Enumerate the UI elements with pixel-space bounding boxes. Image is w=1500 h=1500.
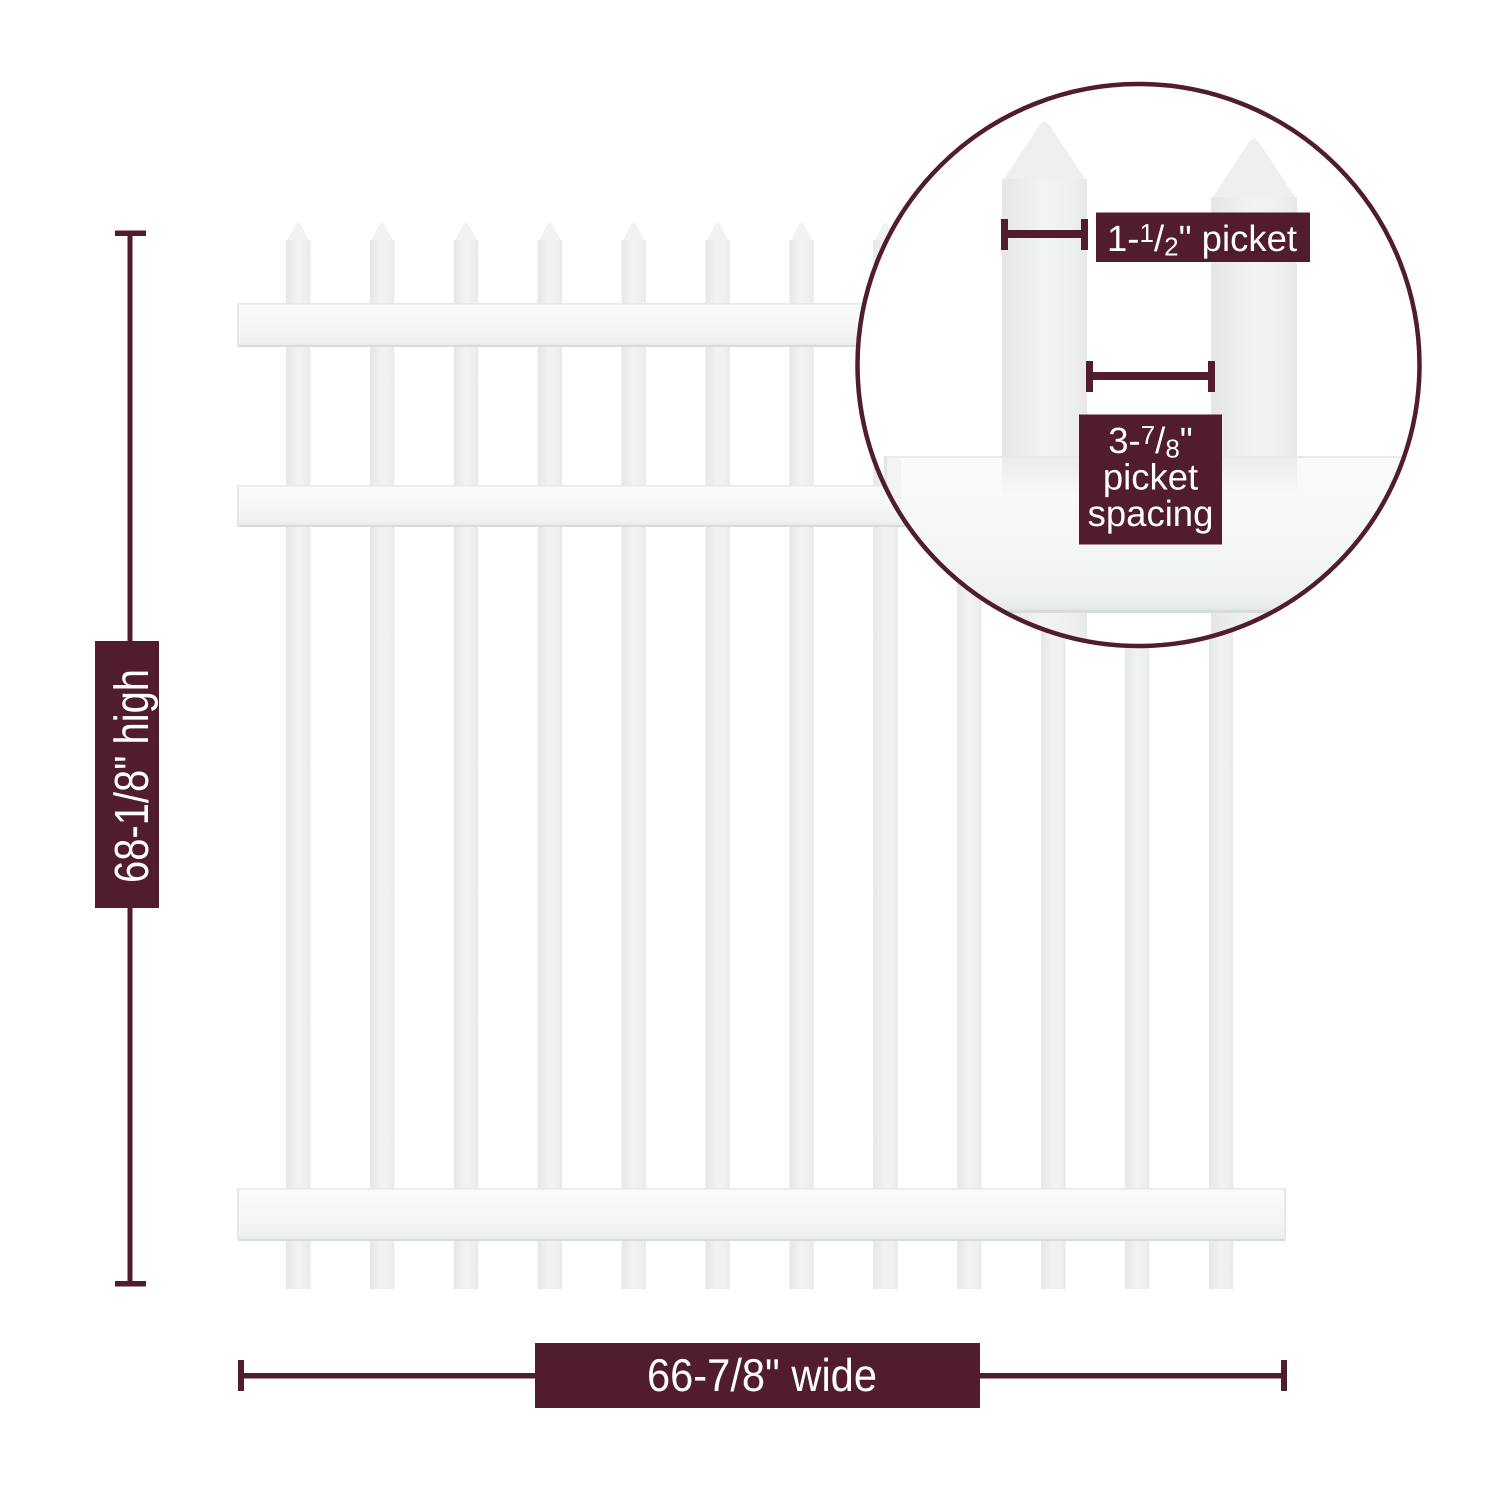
svg-text:1-1/2" picket: 1-1/2" picket [1107, 218, 1297, 262]
svg-text:picket: picket [1103, 457, 1198, 498]
svg-text:68-1/8" high: 68-1/8" high [106, 669, 159, 883]
svg-text:spacing: spacing [1088, 493, 1214, 534]
svg-text:66-7/8" wide: 66-7/8" wide [647, 1349, 877, 1401]
